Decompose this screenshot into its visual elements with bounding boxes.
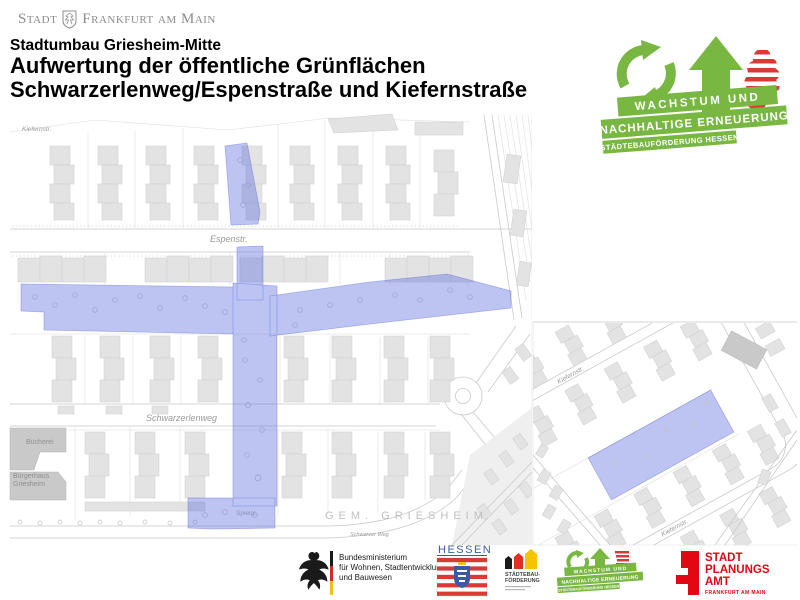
german-flag-stripe-icon <box>330 551 333 595</box>
foerderung-line2: FÖRDERUNG <box>505 577 540 584</box>
program-band2-small: NACHHALTIGE ERNEUERUNG <box>561 575 639 586</box>
footer-logos: Bundesministerium für Wohnen, Stadtentwi… <box>0 0 800 600</box>
planungsamt-line4: FRANKFURT AM MAIN <box>705 590 766 596</box>
planungsamt-line3: AMT <box>705 576 730 588</box>
slide: Stadt Frankfurt am Main Stadtumbau Gries… <box>0 0 800 600</box>
stadtplanungsamt-logo: STADT PLANUNGS AMT FRANKFURT AM MAIN <box>676 551 770 596</box>
ministry-logo: Bundesministerium für Wohnen, Stadtentwi… <box>299 551 445 595</box>
program-logo-small: WACHSTUM UND NACHHALTIGE ERNEUERUNG STÄD… <box>556 548 644 593</box>
hessen-logo: HESSEN <box>437 544 492 596</box>
planungsamt-line2: PLANUNGS <box>705 564 770 576</box>
foerderung-line1: STÄDTEBAU- <box>505 571 540 578</box>
bundesadler-icon <box>299 552 329 590</box>
planungsamt-line1: STADT <box>705 552 742 564</box>
ministry-line3: und Bauwesen <box>339 573 392 582</box>
houses-icon <box>505 549 537 569</box>
staedtebaufoerderung-logo: STÄDTEBAU- FÖRDERUNG <box>505 549 540 590</box>
ministry-line2: für Wohnen, Stadtentwicklung <box>339 563 445 572</box>
hessen-label: HESSEN <box>438 544 492 556</box>
stadtplanungsamt-icon <box>676 551 699 595</box>
hessen-flag-icon <box>437 558 487 596</box>
ministry-line1: Bundesministerium <box>339 553 407 562</box>
